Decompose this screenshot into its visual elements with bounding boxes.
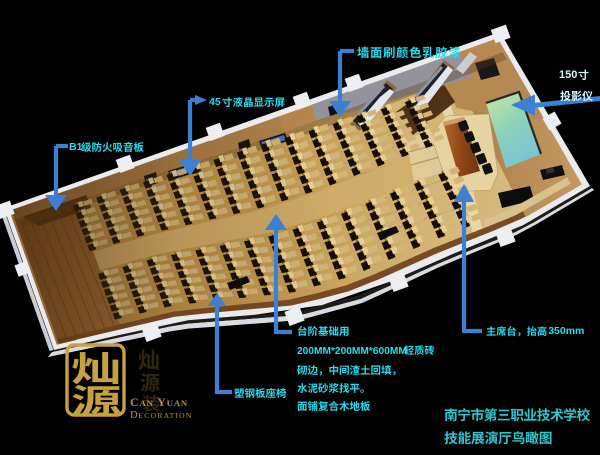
- svg-text:45: 45: [209, 96, 221, 108]
- svg-text:B1: B1: [69, 141, 83, 153]
- svg-text:CAN YUAN: CAN YUAN: [130, 395, 188, 409]
- svg-text:200MM*200MM*600MM: 200MM*200MM*600MM: [297, 346, 407, 357]
- svg-text:DECORATION: DECORATION: [130, 410, 192, 421]
- svg-text:150: 150: [559, 69, 577, 81]
- svg-text:350mm: 350mm: [548, 325, 584, 337]
